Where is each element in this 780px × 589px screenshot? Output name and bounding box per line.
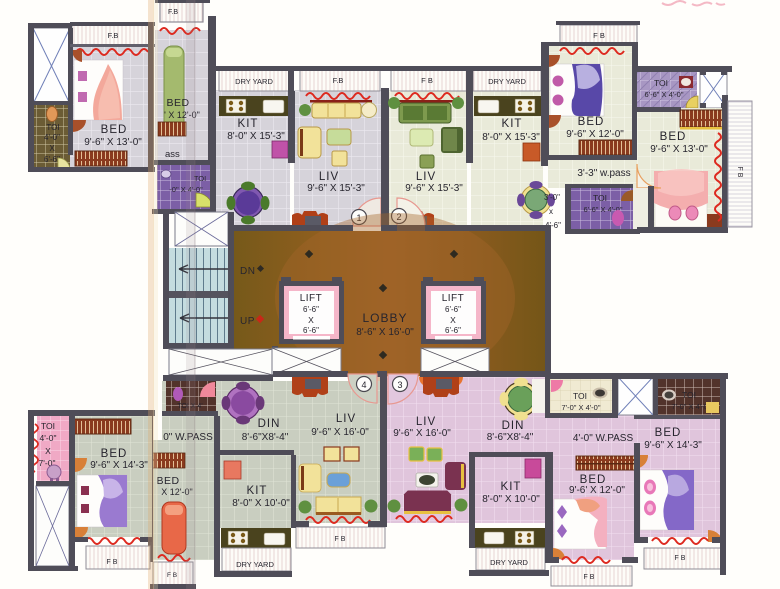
svg-text:9'-6" X 15'-3": 9'-6" X 15'-3" (405, 183, 463, 194)
svg-text:F B: F B (675, 555, 686, 562)
svg-text:6'-6": 6'-6" (303, 305, 319, 314)
svg-text:F.B: F.B (333, 76, 344, 85)
svg-text:8'-6"X8'-4": 8'-6"X8'-4" (487, 432, 534, 443)
svg-text:F B: F B (593, 31, 605, 40)
svg-text:8'-6"X8'-4": 8'-6"X8'-4" (242, 432, 289, 443)
svg-text:DIN: DIN (258, 418, 281, 430)
svg-text:ass: ass (165, 149, 180, 160)
svg-text:F B: F B (107, 559, 118, 566)
svg-text:DRY YARD: DRY YARD (235, 77, 273, 86)
svg-text:4'-0": 4'-0" (40, 433, 57, 443)
svg-text:F B: F B (167, 572, 177, 579)
svg-text:TOI: TOI (654, 78, 668, 88)
svg-text:TOI: TOI (41, 421, 55, 431)
svg-text:LIV: LIV (336, 413, 356, 425)
svg-text:4: 4 (361, 380, 366, 390)
svg-text:9'-6' X 12'-0": 9'-6' X 12'-0" (569, 485, 625, 496)
svg-text:TOI: TOI (573, 391, 587, 401)
svg-text:BED: BED (655, 427, 682, 439)
svg-text:4'-0" W.PASS: 4'-0" W.PASS (573, 433, 634, 444)
svg-text:X: X (450, 315, 456, 325)
svg-text:BED: BED (101, 448, 128, 460)
svg-text:DRY YARD: DRY YARD (488, 77, 526, 86)
svg-text:LIV: LIV (319, 171, 339, 183)
svg-text:LIFT: LIFT (300, 293, 323, 304)
svg-text:TOI: TOI (593, 193, 607, 203)
svg-text:4'-0": 4'-0" (44, 133, 60, 142)
svg-text:TOI: TOI (682, 390, 696, 400)
svg-text:9'-6" X 16'-0": 9'-6" X 16'-0" (311, 427, 369, 438)
svg-text:9'-6" X 16'-0": 9'-6" X 16'-0" (393, 428, 451, 439)
svg-text:X: X (308, 315, 314, 325)
svg-text:6'-6" X 4'-0": 6'-6" X 4'-0" (644, 90, 683, 99)
svg-text:3'-3" w.pass: 3'-3" w.pass (577, 168, 630, 179)
svg-text:6'-6": 6'-6" (445, 326, 461, 335)
svg-text:8'-6" X 16'-0": 8'-6" X 16'-0" (356, 327, 414, 338)
svg-text:9'-6" X 12'-0": 9'-6" X 12'-0" (566, 129, 624, 140)
svg-text:8'-0" X 10'-0": 8'-0" X 10'-0" (482, 494, 540, 505)
svg-text:9'-6" X 14'-3": 9'-6" X 14'-3" (90, 460, 148, 471)
svg-text:F B: F B (335, 536, 346, 543)
svg-text:F.B: F.B (168, 9, 178, 16)
svg-text:BED: BED (578, 116, 605, 128)
svg-text:DIN: DIN (502, 420, 525, 432)
svg-text:F B: F B (584, 574, 595, 581)
svg-text:BED: BED (101, 124, 128, 136)
svg-text:X: X (49, 144, 55, 153)
svg-text:LIV: LIV (416, 416, 436, 428)
svg-text:BED: BED (156, 475, 179, 487)
svg-text:DN: DN (240, 266, 255, 277)
svg-text:9'-6" X 15'-3": 9'-6" X 15'-3" (307, 183, 365, 194)
svg-text:8'-0" X 15'-3": 8'-0" X 15'-3" (227, 131, 285, 142)
svg-text:7'-0" X 4'-0": 7'-0" X 4'-0" (671, 402, 710, 411)
svg-text:8'-0" X 10'-0": 8'-0" X 10'-0" (232, 498, 290, 509)
svg-text:BED: BED (660, 131, 687, 143)
svg-text:LOBBY: LOBBY (362, 311, 407, 325)
svg-text:3: 3 (397, 380, 402, 390)
svg-text:7'-0" X 4'-0": 7'-0" X 4'-0" (561, 403, 600, 412)
svg-text:LIV: LIV (416, 171, 436, 183)
svg-text:UP: UP (240, 316, 255, 327)
svg-text:3'-0": 3'-0" (544, 193, 560, 202)
svg-text:DRY YARD: DRY YARD (490, 558, 528, 567)
svg-text:9'-6" X 13'-0": 9'-6" X 13'-0" (650, 144, 708, 155)
svg-text:F.B: F.B (108, 31, 119, 40)
svg-text:F B: F B (421, 76, 433, 85)
svg-text:8'-0" X 15'-3": 8'-0" X 15'-3" (482, 132, 540, 143)
svg-text:9'-6" X 13'-0": 9'-6" X 13'-0" (84, 137, 142, 148)
svg-text:KIT: KIT (501, 481, 522, 493)
svg-text:6'-6": 6'-6" (445, 305, 461, 314)
svg-text:X: X (45, 446, 51, 456)
svg-text:KIT: KIT (247, 485, 268, 497)
svg-text:KIT: KIT (238, 118, 259, 130)
svg-text:x: x (549, 207, 553, 216)
svg-text:KIT: KIT (502, 118, 523, 130)
svg-text:DRY YARD: DRY YARD (236, 560, 274, 569)
svg-text:TOI: TOI (46, 123, 59, 132)
svg-text:6'-6": 6'-6" (303, 326, 319, 335)
svg-text:LIFT: LIFT (442, 293, 465, 304)
svg-text:F B: F B (736, 167, 743, 178)
svg-text:9'-6" X 14'-3": 9'-6" X 14'-3" (644, 440, 702, 451)
